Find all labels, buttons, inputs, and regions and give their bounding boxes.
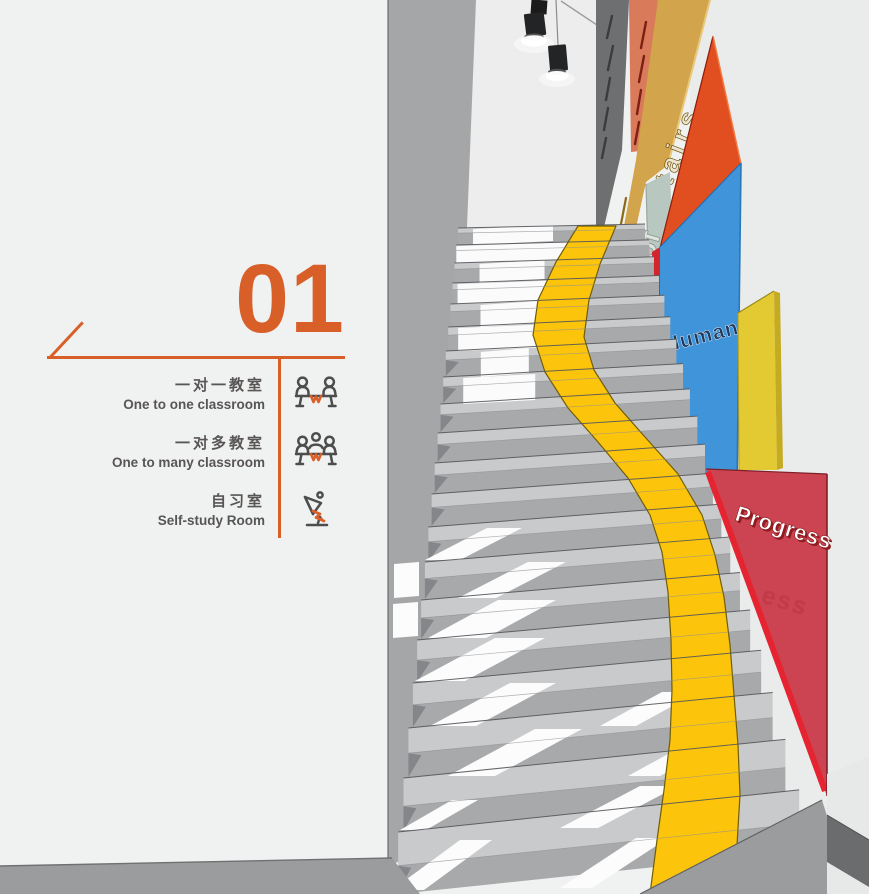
room-label: 一对一教室 One to one classroom xyxy=(40,376,265,413)
room-label-en: Self-study Room xyxy=(40,512,265,529)
room-label-zh: 一对一教室 xyxy=(40,376,265,396)
horizontal-rule xyxy=(47,356,345,359)
room-label-en: One to one classroom xyxy=(40,396,265,413)
desk-lamp-icon xyxy=(293,487,339,533)
room-label-en: One to many classroom xyxy=(40,454,265,471)
section-number: 01 xyxy=(235,250,345,347)
room-label-zh: 一对多教室 xyxy=(40,434,265,454)
room-label-zh: 自习室 xyxy=(40,492,265,512)
room-label: 自习室 Self-study Room xyxy=(40,492,265,529)
yellow-wall-panel xyxy=(738,291,783,470)
room-legend: 一对一教室 One to one classroom 一对多教室 xyxy=(40,371,340,545)
list-item-self-study-room: 自习室 Self-study Room xyxy=(40,487,340,533)
light-mount xyxy=(531,0,548,15)
right-wall-corner xyxy=(827,757,869,894)
list-item-one-to-many-classroom: 一对多教室 One to many classroom xyxy=(40,429,340,475)
room-label: 一对多教室 One to many classroom xyxy=(40,434,265,471)
one-to-one-classroom-icon xyxy=(293,371,339,417)
list-item-one-to-one-classroom: 一对一教室 One to one classroom xyxy=(40,371,340,417)
one-to-many-classroom-icon xyxy=(293,429,339,475)
stairway-design-board: stairs of Human xyxy=(0,0,869,894)
